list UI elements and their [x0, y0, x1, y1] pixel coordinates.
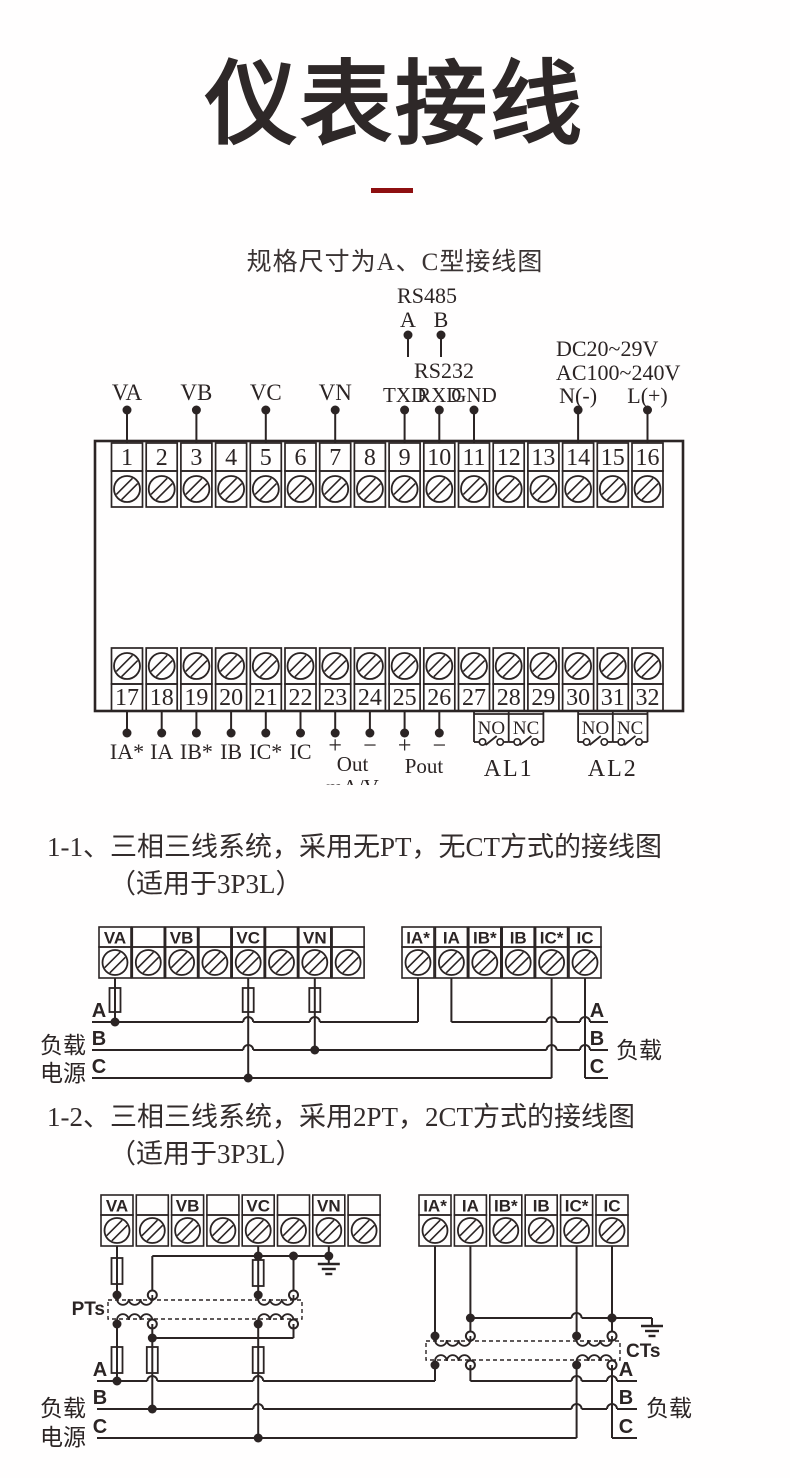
screw-icon: [496, 476, 522, 502]
terminal-number: 1: [121, 445, 133, 471]
terminal-screw-box: [136, 1215, 168, 1246]
rs485-a-label: A: [400, 307, 416, 332]
contact-point: [636, 739, 642, 745]
terminal-number: 26: [427, 685, 451, 711]
terminal-cell: VA: [99, 927, 131, 978]
contact-point: [514, 739, 520, 745]
screw-icon: [114, 476, 140, 502]
terminal-screw-box: [207, 1215, 239, 1246]
screw-icon: [281, 1218, 306, 1243]
voltage-terminal-label: VC: [250, 380, 282, 405]
terminal-cell: IB*: [469, 927, 501, 978]
screw-icon: [530, 653, 556, 679]
terminal-screw-box: [166, 947, 198, 978]
terminal-label-box: [132, 927, 164, 947]
terminal-cell: [348, 1195, 380, 1246]
terminal-label: VB: [170, 929, 194, 948]
relay-no-label: NO: [582, 718, 609, 739]
power-out-label: Pout: [405, 754, 444, 778]
screw-icon: [458, 1218, 483, 1243]
relay-nc-label: NC: [513, 718, 539, 739]
junction-dot: [157, 729, 166, 738]
terminal-number: 4: [225, 445, 237, 471]
screw-icon: [302, 950, 327, 975]
terminal-cell: 16: [632, 443, 663, 507]
terminal-cell: 6: [285, 443, 316, 507]
terminal-cell: 17: [112, 648, 143, 711]
relay-group-label: AL2: [588, 756, 638, 782]
screw-icon: [539, 950, 564, 975]
current-terminal-label: IA: [150, 739, 173, 764]
analog-out-label: Out: [337, 752, 369, 776]
terminal-number: 7: [329, 445, 341, 471]
junction-dot: [227, 729, 236, 738]
contact-point: [532, 739, 538, 745]
analog-out-unit: mA/V: [326, 775, 379, 785]
terminal-cell: 8: [354, 443, 385, 507]
phase-a-label: A: [590, 1000, 604, 1022]
terminal-cell: IB: [502, 927, 534, 978]
terminal-number: 24: [358, 685, 382, 711]
voltage-terminal-label: VB: [180, 380, 212, 405]
rs485-b-label: B: [434, 307, 449, 332]
screw-icon: [253, 653, 279, 679]
phase-c-label: C: [590, 1056, 604, 1078]
terminal-cell: 28: [493, 648, 524, 711]
terminal-cell: 1: [112, 443, 143, 507]
terminal-number: 17: [115, 685, 139, 711]
terminal-cell: VB: [166, 927, 198, 978]
screw-icon: [322, 476, 348, 502]
terminal-cell: VN: [313, 1195, 345, 1246]
terminal-label: VN: [317, 1197, 341, 1216]
terminal-cell: 23: [320, 648, 351, 711]
terminal-cell: 22: [285, 648, 316, 711]
screw-icon: [461, 653, 487, 679]
voltage-terminal-label: VA: [112, 380, 143, 405]
terminal-screw-box: [132, 947, 164, 978]
terminal-label: IC: [577, 929, 594, 948]
screw-icon: [439, 950, 464, 975]
junction-dot: [113, 1377, 122, 1386]
screw-icon: [218, 476, 244, 502]
terminal-number: 18: [150, 685, 174, 711]
terminal-number: 30: [566, 685, 590, 711]
terminal-label: IB*: [494, 1197, 518, 1216]
phase-a-label: A: [619, 1359, 633, 1381]
terminal-label-box: [266, 927, 298, 947]
terminal-cell: [136, 1195, 168, 1246]
screw-icon: [496, 653, 522, 679]
terminal-number: 6: [295, 445, 307, 471]
terminal-screw-box: [561, 1215, 593, 1246]
diagram-3p3l-pt-ct: VAVBVCVNIA*IAIB*IBIC*ICPTsCTsABCABC负载电源负…: [0, 1185, 790, 1478]
junction-dot: [261, 729, 270, 738]
terminal-number: 16: [636, 445, 660, 471]
terminal-label: IB: [510, 929, 527, 948]
terminal-label: IB: [533, 1197, 550, 1216]
screw-icon: [392, 653, 418, 679]
phase-b-label: B: [590, 1028, 604, 1050]
junction-dot: [244, 1074, 253, 1083]
power-dc-label: DC20~29V: [556, 336, 658, 361]
terminal-cell: [266, 927, 298, 978]
screw-icon: [316, 1218, 341, 1243]
terminal-number: 19: [184, 685, 208, 711]
relay-group-label: AL1: [484, 756, 534, 782]
terminal-number: 14: [566, 445, 590, 471]
terminal-cell: IA: [454, 1195, 486, 1246]
main-terminal-block-diagram: 1234567891011121314151617181920212223242…: [0, 270, 790, 785]
junction-dot: [111, 1018, 120, 1027]
screw-icon: [493, 1218, 518, 1243]
terminal-cell: 5: [250, 443, 281, 507]
terminal-number: 29: [531, 685, 555, 711]
section-1-1-subtext: （适用于3P3L）: [47, 867, 747, 901]
terminal-cell: 13: [528, 443, 559, 507]
contact-point: [601, 739, 607, 745]
rs232-title: RS232: [414, 358, 474, 383]
screw-icon: [336, 950, 361, 975]
terminal-cell: 11: [459, 443, 490, 507]
terminal-screw-box: [99, 947, 131, 978]
terminal-cell: 4: [216, 443, 247, 507]
terminal-cell: [332, 927, 364, 978]
terminal-label: VA: [106, 1197, 128, 1216]
terminal-label: IA*: [406, 929, 430, 948]
terminal-cell: 27: [459, 648, 490, 711]
terminal-cell: VB: [172, 1195, 204, 1246]
terminal-label: IC*: [540, 929, 564, 948]
terminal-number: 22: [289, 685, 313, 711]
terminal-cell: 7: [320, 443, 351, 507]
terminal-number: 11: [462, 445, 485, 471]
terminal-label: IA: [462, 1197, 479, 1216]
terminal-number: 20: [219, 685, 243, 711]
current-terminal-label: IA*: [110, 739, 144, 764]
terminal-cell: [207, 1195, 239, 1246]
section-heading-1-1: 1-1、三相三线系统，采用无PT，无CT方式的接线图 （适用于3P3L）: [47, 830, 747, 901]
screw-icon: [426, 653, 452, 679]
screw-icon: [210, 1218, 235, 1243]
phase-c-label: C: [93, 1416, 107, 1438]
rs485-title: RS485: [397, 283, 457, 308]
terminal-cell: 10: [424, 443, 455, 507]
terminal-number: 28: [497, 685, 521, 711]
screw-icon: [573, 950, 598, 975]
voltage-terminal-label: VN: [319, 380, 353, 405]
contact-point: [497, 739, 503, 745]
terminal-cell: [132, 927, 164, 978]
terminal-screw-box: [266, 947, 298, 978]
terminal-cell: IB: [525, 1195, 557, 1246]
terminal-cell: 32: [632, 648, 663, 711]
pt-group-box: [108, 1300, 302, 1319]
screw-icon: [564, 1218, 589, 1243]
current-terminal-label: IB: [220, 739, 242, 764]
terminal-cell: IC*: [536, 927, 568, 978]
power-live-label: L(+): [627, 383, 668, 408]
terminal-label: IA: [443, 929, 460, 948]
junction-dot: [254, 1434, 263, 1443]
screw-icon: [175, 1218, 200, 1243]
screw-icon: [183, 476, 209, 502]
junction-dot: [608, 1314, 617, 1323]
terminal-cell: 18: [146, 648, 177, 711]
terminal-number: 5: [260, 445, 272, 471]
screw-icon: [529, 1218, 554, 1243]
terminal-number: 25: [393, 685, 417, 711]
terminal-screw-box: [101, 1215, 133, 1246]
terminal-screw-box: [232, 947, 264, 978]
terminal-screw-box: [419, 1215, 451, 1246]
screw-icon: [530, 476, 556, 502]
terminal-label: VC: [236, 929, 260, 948]
contact-point: [479, 739, 485, 745]
pt-group-label: PTs: [72, 1299, 105, 1320]
section-heading-1-2: 1-2、三相三线系统，采用2PT，2CT方式的接线图 （适用于3P3L）: [47, 1100, 747, 1171]
terminal-cell: IC: [596, 1195, 628, 1246]
junction-dot: [148, 1405, 157, 1414]
screw-icon: [352, 1218, 377, 1243]
screw-icon: [149, 653, 175, 679]
section-1-2-text: 1-2、三相三线系统，采用2PT，2CT方式的接线图: [47, 1100, 747, 1134]
phase-c-label: C: [619, 1416, 633, 1438]
terminal-cell: 15: [597, 443, 628, 507]
terminal-label-box: [332, 927, 364, 947]
current-terminal-label: IC*: [249, 739, 282, 764]
terminal-cell: 2: [146, 443, 177, 507]
screw-icon: [565, 653, 591, 679]
load-label: 负载: [616, 1038, 662, 1064]
terminal-label: IC: [604, 1197, 621, 1216]
terminal-number: 10: [427, 445, 451, 471]
terminal-number: 31: [601, 685, 625, 711]
screw-icon: [392, 476, 418, 502]
power-neutral-label: N(-): [559, 383, 597, 408]
contact-point: [618, 739, 624, 745]
terminal-cell: VC: [242, 1195, 274, 1246]
screw-icon: [103, 950, 128, 975]
terminal-screw-box: [348, 1215, 380, 1246]
terminal-cell: 19: [181, 648, 212, 711]
screw-icon: [322, 653, 348, 679]
screw-icon: [635, 653, 661, 679]
terminal-label-box: [199, 927, 231, 947]
terminal-cell: IA*: [419, 1195, 451, 1246]
terminal-number: 27: [462, 685, 486, 711]
terminal-screw-box: [299, 947, 331, 978]
terminal-label-box: [207, 1195, 239, 1215]
phase-b-label: B: [93, 1387, 107, 1409]
terminal-number: 3: [190, 445, 202, 471]
section-1-2-subtext: （适用于3P3L）: [47, 1137, 747, 1171]
screw-icon: [406, 950, 431, 975]
terminal-label-box: [348, 1195, 380, 1215]
terminal-label: VC: [246, 1197, 270, 1216]
source-label: 电源: [40, 1061, 86, 1087]
terminal-screw-box: [490, 1215, 522, 1246]
section-1-1-text: 1-1、三相三线系统，采用无PT，无CT方式的接线图: [47, 830, 747, 864]
terminal-label: IA*: [423, 1197, 447, 1216]
junction-dot: [192, 729, 201, 738]
screw-icon: [236, 950, 261, 975]
terminal-number: 13: [531, 445, 555, 471]
terminal-cell: 31: [597, 648, 628, 711]
terminal-cell: IA: [435, 927, 467, 978]
page: 仪表接线 规格尺寸为A、C型接线图 1234567891011121314151…: [0, 0, 790, 1478]
terminal-number: 9: [399, 445, 411, 471]
screw-icon: [357, 476, 383, 502]
terminal-number: 21: [254, 685, 278, 711]
terminal-screw-box: [469, 947, 501, 978]
terminal-cell: 12: [493, 443, 524, 507]
terminal-cell: VC: [232, 927, 264, 978]
junction-dot: [310, 1046, 319, 1055]
terminal-cell: 30: [563, 648, 594, 711]
screw-icon: [600, 653, 626, 679]
terminal-number: 12: [497, 445, 521, 471]
terminal-label: VB: [176, 1197, 200, 1216]
title-divider: [371, 188, 413, 193]
screw-icon: [506, 950, 531, 975]
rs232-pin-label: GND: [451, 383, 497, 407]
relay-group: NONCAL2: [578, 711, 647, 782]
screw-icon: [472, 950, 497, 975]
terminal-label: VN: [303, 929, 327, 948]
terminal-label: IC*: [565, 1197, 589, 1216]
terminal-cell: 3: [181, 443, 212, 507]
terminal-cell: 29: [528, 648, 559, 711]
terminal-screw-box: [332, 947, 364, 978]
terminal-screw-box: [569, 947, 601, 978]
terminal-cell: VA: [101, 1195, 133, 1246]
terminal-cell: 24: [354, 648, 385, 711]
terminal-cell: 25: [389, 648, 420, 711]
screw-icon: [357, 653, 383, 679]
terminal-screw-box: [242, 1215, 274, 1246]
terminal-number: 23: [323, 685, 347, 711]
screw-icon: [461, 476, 487, 502]
terminal-screw-box: [435, 947, 467, 978]
screw-icon: [635, 476, 661, 502]
screw-icon: [140, 1218, 165, 1243]
terminal-screw-box: [313, 1215, 345, 1246]
screw-icon: [600, 476, 626, 502]
screw-icon: [246, 1218, 271, 1243]
terminal-label: VA: [104, 929, 126, 948]
terminal-screw-box: [525, 1215, 557, 1246]
screw-icon: [600, 1218, 625, 1243]
terminal-cell: IB*: [490, 1195, 522, 1246]
junction-dot: [296, 729, 305, 738]
screw-icon: [183, 653, 209, 679]
terminal-label-box: [136, 1195, 168, 1215]
relay-nc-label: NC: [617, 718, 643, 739]
load-label: 负载: [40, 1033, 86, 1059]
screw-icon: [288, 653, 314, 679]
terminal-cell: 20: [216, 648, 247, 711]
terminal-number: 32: [636, 685, 660, 711]
load-label: 负载: [646, 1396, 692, 1422]
phase-c-label: C: [92, 1056, 106, 1078]
junction-dot: [254, 1252, 263, 1261]
terminal-cell: IA*: [402, 927, 434, 978]
phase-a-label: A: [93, 1359, 107, 1381]
screw-icon: [426, 476, 452, 502]
terminal-screw-box: [172, 1215, 204, 1246]
page-title: 仪表接线: [0, 30, 790, 163]
load-label: 负载: [40, 1396, 86, 1422]
terminal-cell: IC: [569, 927, 601, 978]
terminal-screw-box: [536, 947, 568, 978]
current-terminal-label: IB*: [180, 739, 213, 764]
screw-icon: [565, 476, 591, 502]
terminal-cell: [278, 1195, 310, 1246]
current-terminal-label: IC: [290, 739, 312, 764]
terminal-screw-box: [502, 947, 534, 978]
relay-no-label: NO: [478, 718, 505, 739]
screw-icon: [114, 653, 140, 679]
terminal-screw-box: [402, 947, 434, 978]
phase-b-label: B: [619, 1387, 633, 1409]
terminal-cell: 21: [250, 648, 281, 711]
terminal-cell: 14: [563, 443, 594, 507]
screw-icon: [218, 653, 244, 679]
terminal-screw-box: [278, 1215, 310, 1246]
terminal-cell: VN: [299, 927, 331, 978]
terminal-label-box: [278, 1195, 310, 1215]
screw-icon: [149, 476, 175, 502]
screw-icon: [269, 950, 294, 975]
screw-icon: [202, 950, 227, 975]
screw-icon: [105, 1218, 130, 1243]
terminal-label: IB*: [473, 929, 497, 948]
terminal-cell: 9: [389, 443, 420, 507]
terminal-number: 15: [601, 445, 625, 471]
phase-b-label: B: [92, 1028, 106, 1050]
terminal-screw-box: [596, 1215, 628, 1246]
phase-a-label: A: [92, 1000, 106, 1022]
screw-icon: [253, 476, 279, 502]
terminal-number: 8: [364, 445, 376, 471]
terminal-screw-box: [454, 1215, 486, 1246]
junction-dot: [123, 729, 132, 738]
screw-icon: [136, 950, 161, 975]
screw-icon: [423, 1218, 448, 1243]
screw-icon: [169, 950, 194, 975]
terminal-screw-box: [199, 947, 231, 978]
relay-group: NONCAL1: [474, 711, 543, 782]
contact-point: [583, 739, 589, 745]
power-ac-label: AC100~240V: [556, 360, 680, 385]
source-label: 电源: [40, 1425, 86, 1451]
diagram-3p3l-direct: VAVBVCVNIA*IAIB*IBIC*ICABCABC负载电源负载: [0, 900, 790, 1095]
terminal-cell: IC*: [561, 1195, 593, 1246]
terminal-cell: 26: [424, 648, 455, 711]
terminal-number: 2: [156, 445, 168, 471]
screw-icon: [288, 476, 314, 502]
terminal-cell: [199, 927, 231, 978]
